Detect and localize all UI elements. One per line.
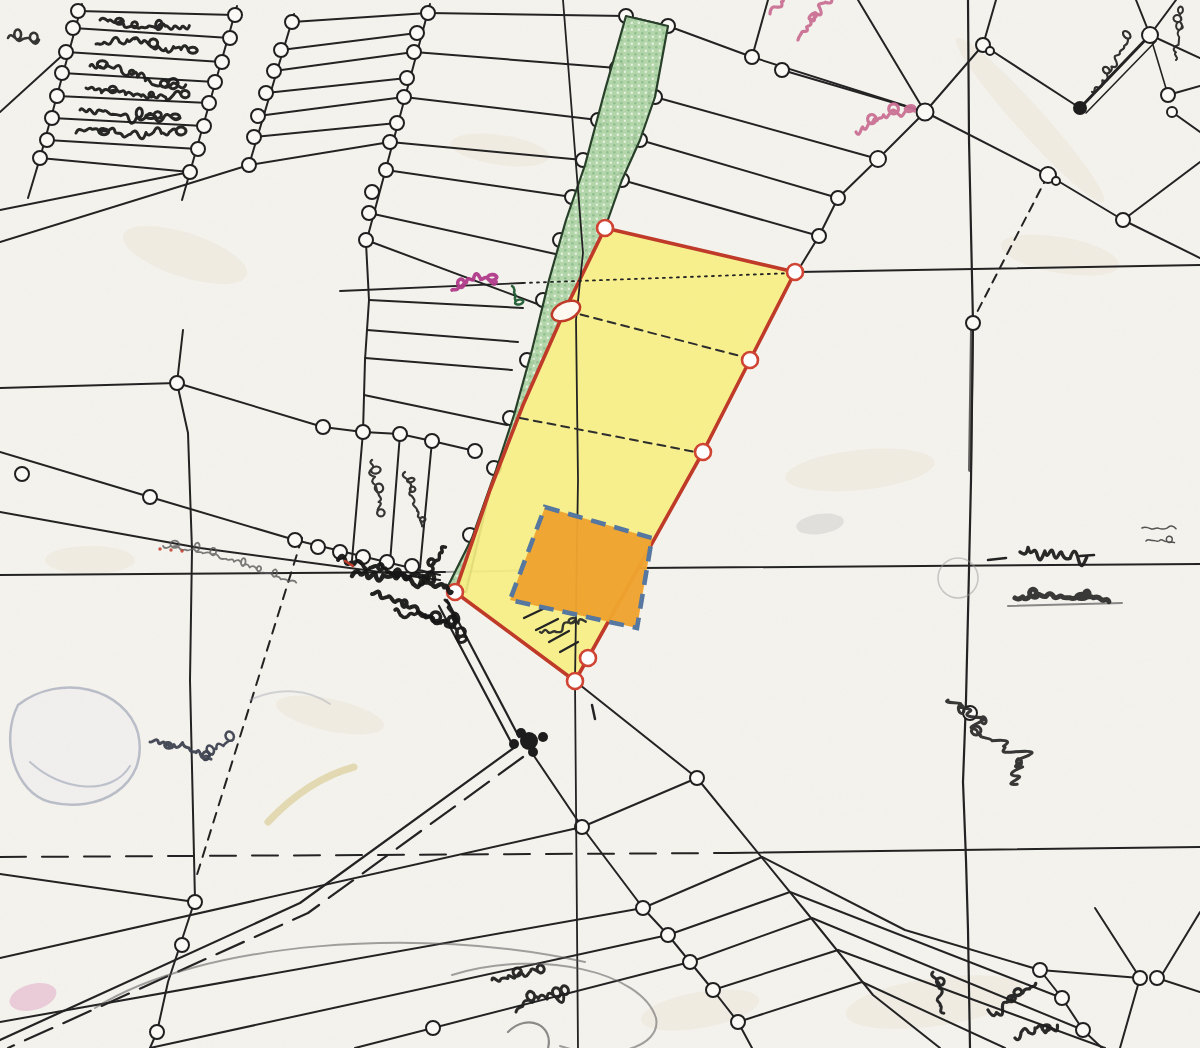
red-ink-dot [180, 549, 183, 552]
survey-circle-marker [288, 533, 302, 547]
survey-circle-marker [242, 158, 256, 172]
survey-circle-marker [59, 45, 73, 59]
survey-circle-marker [690, 771, 704, 785]
junction-blob-marker [538, 732, 548, 742]
survey-circle-marker [407, 45, 421, 59]
survey-circle-marker [362, 206, 376, 220]
survey-circle-marker [1161, 88, 1175, 102]
survey-circle-marker [267, 64, 281, 78]
survey-circle-marker [1116, 213, 1130, 227]
survey-circle-marker [383, 135, 397, 149]
scanned-cadastral-map [0, 0, 1200, 1048]
survey-circle-marker [66, 21, 80, 35]
red-ink-dot [169, 548, 172, 551]
survey-circle-marker [251, 109, 265, 123]
parcel-vertex-marker [597, 220, 613, 236]
survey-circle-marker [683, 955, 697, 969]
survey-circle-marker [831, 191, 845, 205]
survey-circle-marker [197, 119, 211, 133]
survey-circle-marker [706, 983, 720, 997]
red-ink-dot [158, 547, 161, 550]
survey-circle-marker [274, 43, 288, 57]
survey-circle-marker [150, 1025, 164, 1039]
survey-circle-marker [1076, 1023, 1090, 1037]
survey-circle-marker [1033, 963, 1047, 977]
survey-circle-marker [228, 8, 242, 22]
survey-circle-marker [1142, 27, 1158, 43]
survey-circle-marker [405, 559, 419, 573]
parcel-vertex-marker [787, 264, 803, 280]
survey-circle-marker [183, 165, 197, 179]
survey-circle-marker [311, 540, 325, 554]
paper-blotch [45, 546, 135, 574]
survey-circle-marker [661, 928, 675, 942]
survey-circle-marker [393, 427, 407, 441]
survey-circle-marker [71, 4, 85, 18]
survey-circle-marker [45, 111, 59, 125]
survey-circle-marker [285, 15, 299, 29]
survey-circle-marker [397, 90, 411, 104]
survey-circle-marker [731, 1015, 745, 1029]
parcel-vertex-marker [742, 352, 758, 368]
survey-circle-marker [143, 490, 157, 504]
survey-circle-marker [421, 6, 435, 20]
survey-circle-marker [188, 895, 202, 909]
junction-blob-marker [516, 728, 526, 738]
survey-circle-marker [745, 50, 759, 64]
survey-circle-marker [812, 229, 826, 243]
survey-circle-marker [410, 26, 424, 40]
survey-circle-marker [390, 116, 404, 130]
parcel-vertex-marker [567, 673, 583, 689]
survey-circle-marker [1133, 971, 1147, 985]
survey-circle-marker [15, 467, 29, 481]
survey-circle-marker [468, 444, 482, 458]
junction-blob-marker [1073, 101, 1087, 115]
survey-circle-marker [775, 63, 789, 77]
parcel-vertex-marker [580, 650, 596, 666]
parcel-vertex-marker [695, 444, 711, 460]
survey-circle-marker [400, 71, 414, 85]
survey-circle-marker [425, 434, 439, 448]
survey-circle-marker [191, 142, 205, 156]
survey-circle-marker [1167, 107, 1177, 117]
survey-circle-marker [208, 75, 222, 89]
survey-circle-marker [636, 901, 650, 915]
survey-circle-marker [175, 938, 189, 952]
survey-circle-marker [55, 66, 69, 80]
survey-circle-marker [379, 163, 393, 177]
survey-circle-marker [359, 233, 373, 247]
survey-circle-marker [917, 104, 934, 121]
junction-blob-marker [509, 739, 519, 749]
survey-circle-marker [33, 151, 47, 165]
boundary-line [970, 330, 972, 470]
survey-circle-marker [223, 31, 237, 45]
survey-circle-marker [215, 55, 229, 69]
survey-circle-marker [259, 86, 273, 100]
survey-circle-marker [870, 151, 886, 167]
survey-circle-marker [316, 420, 330, 434]
survey-circle-marker [966, 316, 980, 330]
survey-circle-marker [1052, 177, 1060, 185]
survey-circle-marker [356, 425, 370, 439]
survey-circle-marker [1150, 971, 1164, 985]
survey-circle-marker [426, 1021, 440, 1035]
survey-circle-marker [202, 96, 216, 110]
survey-circle-marker [40, 133, 54, 147]
survey-circle-marker [50, 89, 64, 103]
stain-mark [10, 687, 140, 804]
survey-circle-marker [247, 130, 261, 144]
survey-circle-marker [986, 47, 994, 55]
survey-circle-marker [365, 185, 379, 199]
survey-circle-marker [170, 376, 184, 390]
map-canvas [0, 0, 1200, 1048]
junction-blob-marker [528, 747, 538, 757]
survey-circle-marker [1055, 991, 1069, 1005]
